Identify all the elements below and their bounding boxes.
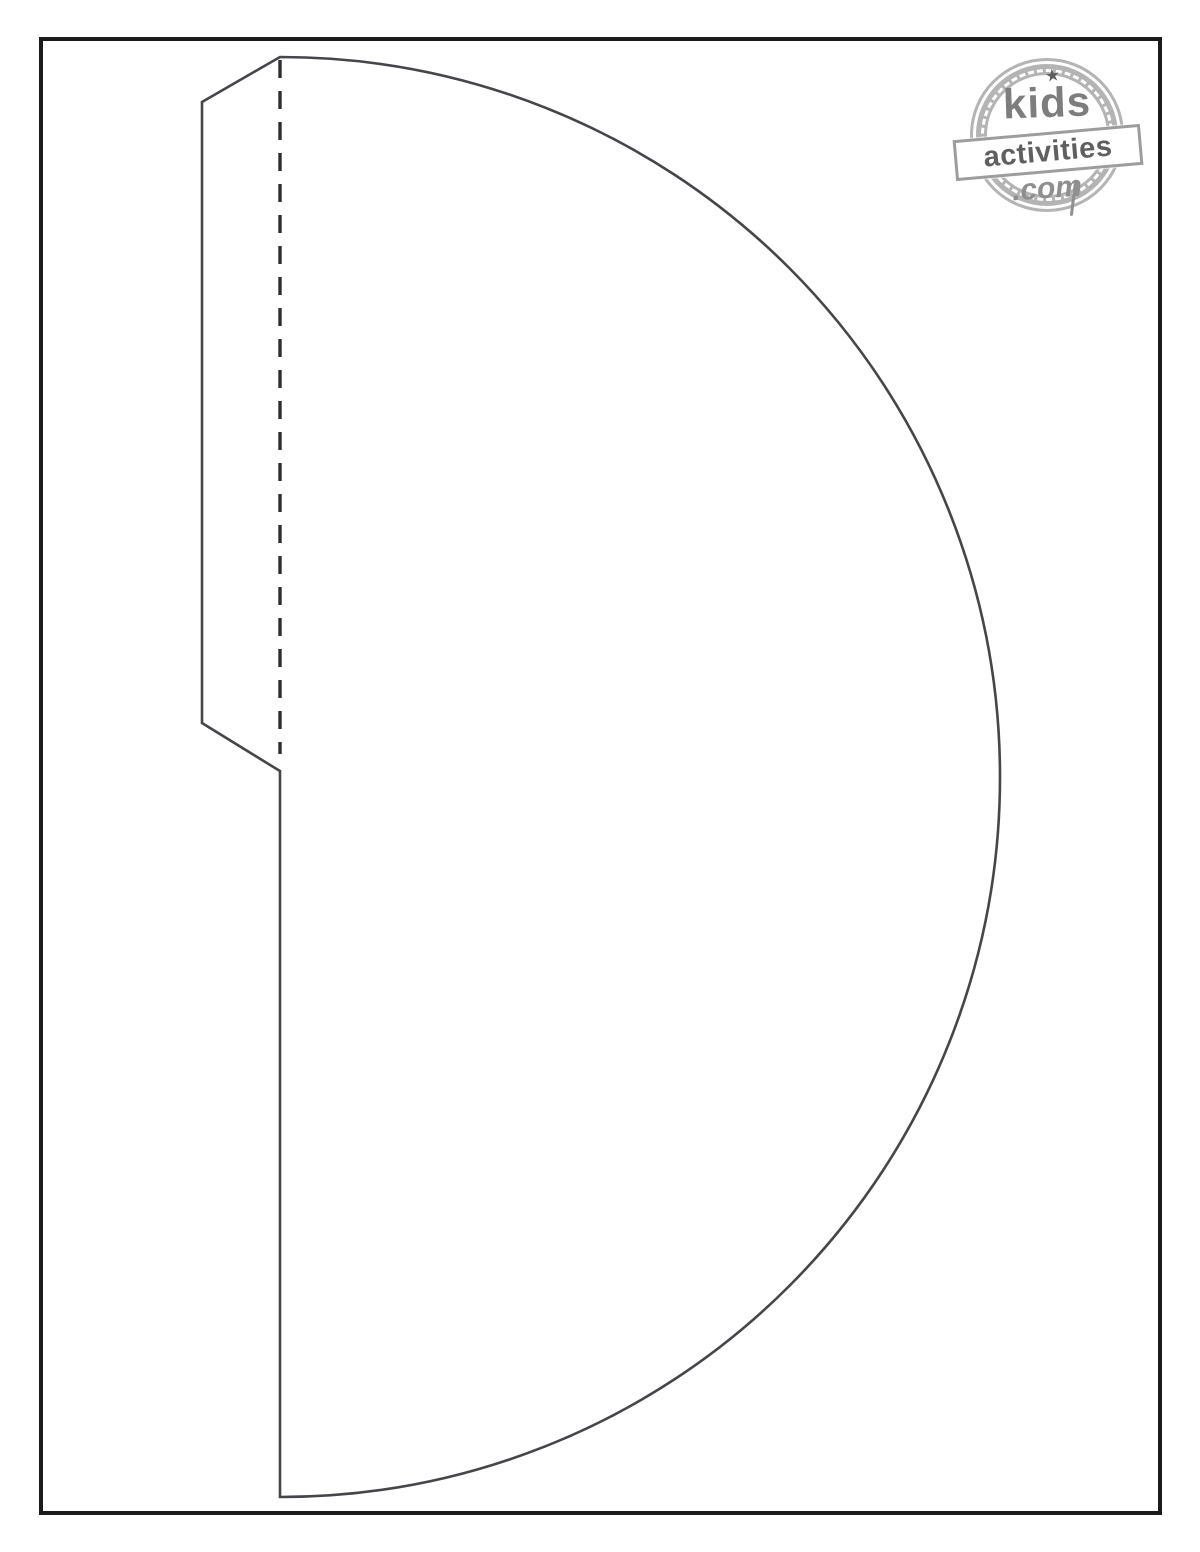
printable-page: ★ kids activities .com	[0, 0, 1200, 1552]
logo-kids-text: kids	[969, 79, 1124, 126]
template-outline-svg	[0, 0, 1200, 1552]
cut-line-path	[202, 57, 1000, 1497]
logo-activities-text: activities	[982, 130, 1114, 174]
kids-activities-logo: ★ kids activities .com	[970, 58, 1124, 212]
